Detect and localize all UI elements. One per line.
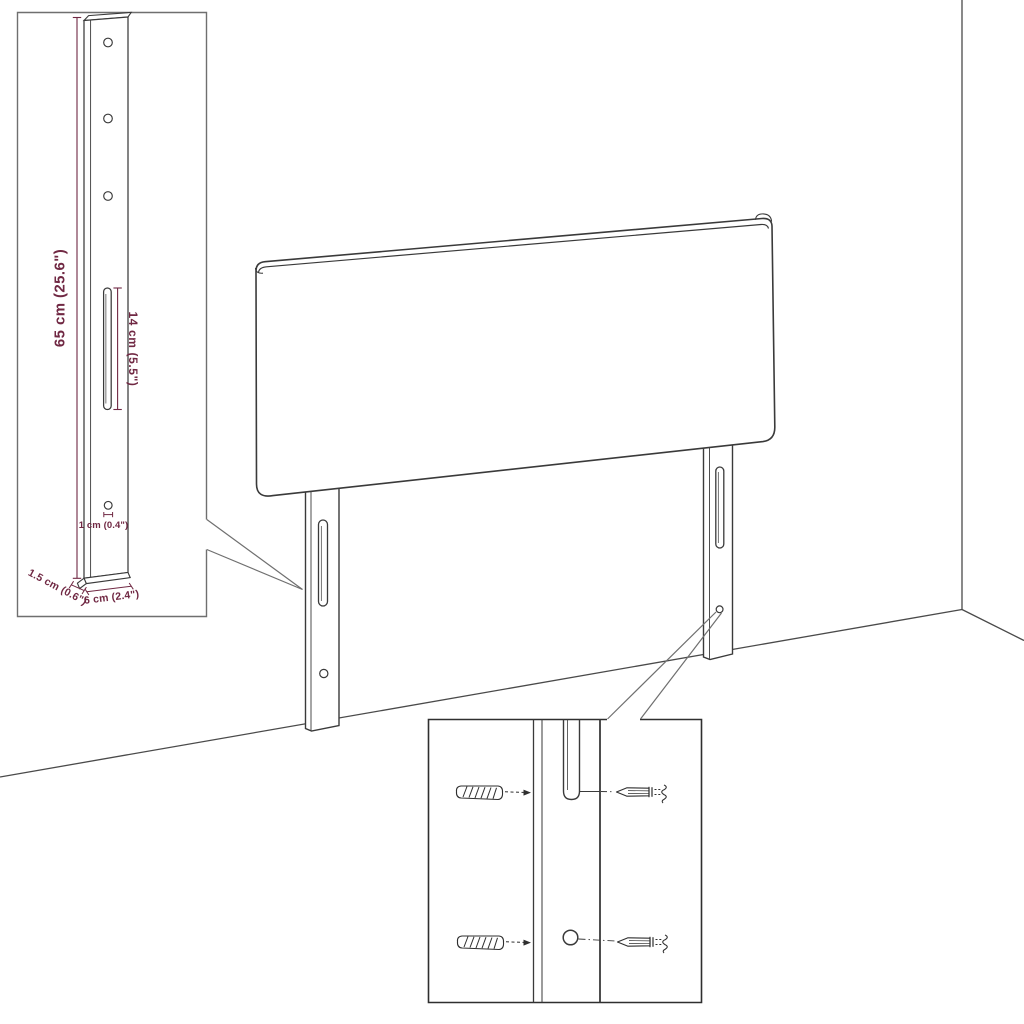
bracket-slot xyxy=(104,288,112,410)
detail-zoom-box xyxy=(429,720,702,1003)
right-leg xyxy=(704,437,733,660)
product-diagram-canvas: 65 cm (25.6") 14 cm (5.5") 1 cm (0.4") 1… xyxy=(0,0,1024,1024)
detail-box-border xyxy=(429,720,702,1003)
inset-callout-line-upper xyxy=(207,520,303,590)
left-leg xyxy=(306,462,340,731)
bracket-hole-lower xyxy=(104,192,113,201)
dim-14cm-label: 14 cm (5.5") xyxy=(126,312,140,387)
inset-callout-line-lower xyxy=(207,550,303,590)
detail-callout-line-left xyxy=(608,612,717,719)
dim-65cm-label: 65 cm (25.6") xyxy=(52,249,69,347)
dim-1cm-label: 1 cm (0.4") xyxy=(79,520,128,531)
bracket-hole-middle xyxy=(104,114,113,123)
left-leg-slot xyxy=(319,520,328,606)
right-leg-hole xyxy=(716,606,723,613)
floor-line-right xyxy=(962,610,1024,641)
bracket-drawing xyxy=(77,12,131,588)
headboard-panel xyxy=(256,214,775,496)
detail-callout-line-right xyxy=(641,613,722,719)
right-leg-slot xyxy=(716,467,724,548)
bracket-hole-top xyxy=(104,38,113,47)
bracket-small-hole xyxy=(104,501,112,509)
left-leg-hole xyxy=(320,669,328,677)
wall-plug-body xyxy=(456,786,502,800)
wall-plug-body xyxy=(457,936,503,950)
technical-drawing: 65 cm (25.6") 14 cm (5.5") 1 cm (0.4") 1… xyxy=(0,0,1024,1024)
headboard-outline xyxy=(256,218,775,496)
